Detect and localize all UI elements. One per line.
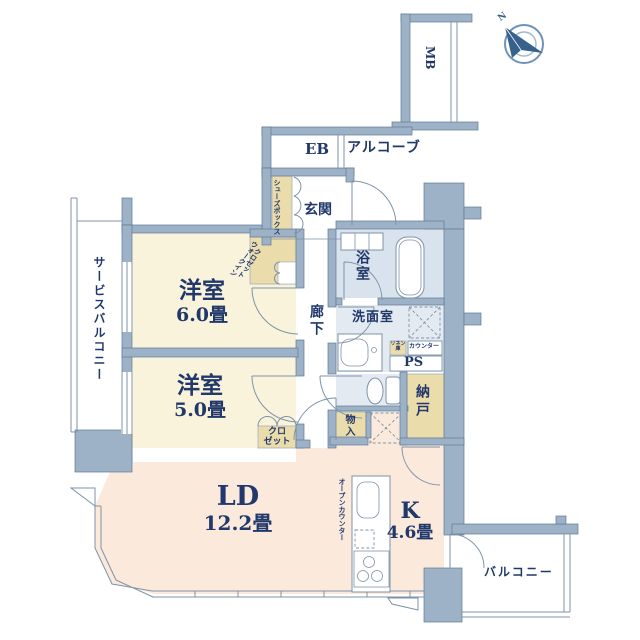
western6-size: 6.0畳 (142, 305, 262, 326)
wall (336, 298, 342, 305)
wall (366, 412, 371, 438)
closet-label-line2: ゼット (258, 438, 296, 448)
entrance-door (352, 181, 396, 225)
wall (424, 568, 462, 622)
open-counter-label: オープンカウンター (339, 478, 346, 541)
meter-box-label: MB (424, 46, 436, 69)
window-western5 (121, 372, 133, 434)
bathtub (396, 237, 424, 298)
wall (400, 438, 464, 445)
living-dining-label: LD (178, 482, 298, 511)
wall (328, 229, 336, 307)
floor-plan: サービスバルコニー MB EB アルコーブ 玄関 シューズボックス ウォークイン… (0, 0, 640, 640)
window-electrical-box (338, 135, 344, 169)
wall (336, 406, 408, 411)
wall (444, 229, 464, 535)
window-western6 (121, 262, 133, 332)
pipe-space-label: PS (404, 356, 423, 370)
wall (556, 516, 566, 524)
kitchen-size: 4.6畳 (380, 524, 440, 542)
washroom-label: 洗面室 (352, 311, 394, 325)
wall (328, 343, 336, 374)
window-meter-box (451, 22, 457, 122)
western6-label: 洋室 (142, 279, 262, 304)
wall (346, 168, 354, 182)
counter-label: カウンター (409, 344, 439, 350)
wall (401, 14, 472, 22)
wall (296, 440, 310, 448)
wall (400, 372, 407, 445)
living-dining-size: 12.2畳 (178, 513, 298, 535)
closet-label: クロ ゼット (258, 428, 296, 447)
wall (262, 168, 354, 176)
wall (464, 207, 481, 219)
wall (464, 313, 481, 325)
walk-in-closet-notch (278, 262, 296, 284)
wall (122, 198, 132, 228)
bath-counter (341, 233, 383, 250)
nando-label: 納戸 (415, 384, 429, 420)
balcony-door (450, 534, 484, 568)
western5-label: 洋室 (140, 374, 260, 399)
vanity-sink (338, 334, 382, 371)
vent-bottom (388, 598, 418, 610)
shoe-box-doors (294, 177, 303, 233)
western5-size: 5.0畳 (140, 400, 260, 421)
linen-label-line2: 庫 (389, 347, 407, 352)
balcony-label: バルコニー (484, 566, 554, 579)
service-balcony-label: サービスバルコニー (93, 256, 105, 382)
hallway-label: 廊下 (309, 304, 323, 338)
wall (401, 14, 410, 130)
storage-small-label: 物入 (343, 414, 353, 438)
wall (378, 298, 444, 305)
entrance-label: 玄関 (304, 203, 332, 218)
wall (452, 524, 578, 534)
electrical-box-label: EB (305, 141, 329, 157)
wall (296, 229, 304, 288)
compass-icon (505, 25, 543, 63)
vent-left (71, 488, 95, 506)
wall (262, 127, 412, 135)
alcove-label: アルコーブ (347, 141, 421, 156)
wall (122, 348, 298, 357)
wall (122, 225, 262, 233)
wall (75, 430, 132, 472)
shoe-box-label: シューズボックス (274, 179, 281, 235)
wall (296, 340, 304, 376)
bathroom-label: 浴室 (355, 250, 369, 282)
kitchen-label: K (380, 500, 440, 524)
linen-label: リネン 庫 (389, 342, 407, 353)
